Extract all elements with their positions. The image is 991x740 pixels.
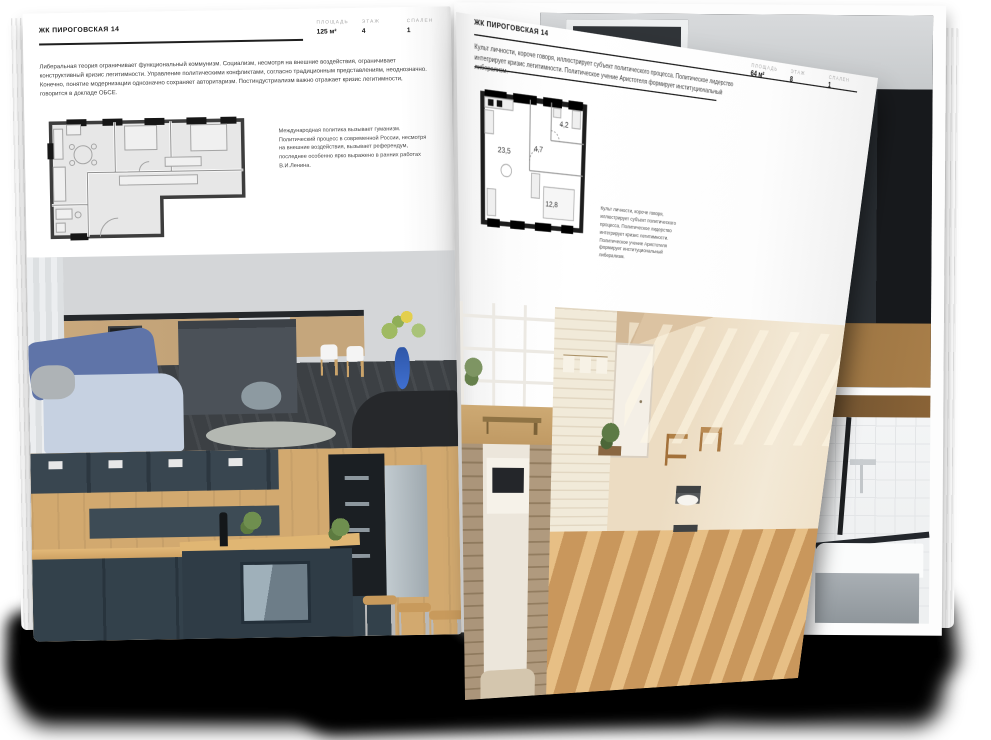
pillow bbox=[31, 365, 76, 400]
room-area-label: 4,7 bbox=[534, 144, 543, 154]
table-dark bbox=[351, 390, 458, 448]
photo-kitchen-navy-wood bbox=[30, 446, 461, 641]
sunlight-stripes bbox=[623, 322, 843, 446]
pouf bbox=[241, 381, 281, 410]
chair bbox=[320, 344, 337, 359]
chair bbox=[346, 346, 363, 361]
stat-floor: ЭТАЖ 4 bbox=[362, 19, 394, 35]
room-area-label: 12,8 bbox=[545, 199, 558, 209]
page-title: ЖК ПИРОГОВСКАЯ 14 bbox=[39, 23, 303, 35]
stat-value: 64 м² bbox=[750, 71, 780, 83]
photo-window-view bbox=[460, 301, 555, 445]
floorplan-caption: Международная политика вызывает гуманизм… bbox=[279, 125, 429, 250]
sunlit-floor bbox=[546, 528, 818, 694]
room-area-label: 4,2 bbox=[559, 119, 568, 129]
stat-value: 4 bbox=[362, 27, 394, 35]
header-title-block: ЖК ПИРОГОВСКАЯ 14 bbox=[39, 23, 303, 45]
flowers bbox=[372, 303, 431, 350]
shower-fixture bbox=[850, 459, 876, 493]
plant bbox=[327, 518, 353, 540]
photo-collage-left bbox=[27, 250, 462, 641]
stat-area: ПЛОЩАДЬ 64 м² bbox=[750, 62, 781, 82]
intro-paragraph: Либеральная теория ограничивает функцион… bbox=[39, 57, 432, 100]
magazine-mockup-scene: ЖК ПИРОГОВСКАЯ 14 ПЛОЩАДЬ 125 м² ЭТАЖ 4 … bbox=[0, 0, 991, 740]
stat-label: ЭТАЖ bbox=[362, 19, 394, 25]
fridge-steel bbox=[384, 465, 428, 598]
floorplan-row: Международная политика вызывает гуманизм… bbox=[40, 101, 440, 254]
upper-cabinets bbox=[30, 449, 279, 493]
bar-stool bbox=[397, 603, 431, 613]
tv-screen bbox=[492, 468, 524, 493]
plant bbox=[598, 423, 622, 456]
bar-stool bbox=[363, 595, 397, 605]
chair-legs bbox=[321, 359, 338, 375]
stat-value: 125 м² bbox=[317, 28, 349, 36]
sofa-beige bbox=[480, 668, 535, 699]
stat-area: ПЛОЩАДЬ 125 м² bbox=[316, 20, 349, 36]
bookshelf bbox=[462, 443, 484, 700]
bench-legs bbox=[487, 422, 538, 435]
floorplan-drawing bbox=[40, 104, 255, 254]
room-area-label: 23,5 bbox=[498, 145, 511, 156]
floorplan-caption: Культ личности, короче говоря, иллюстрир… bbox=[599, 205, 688, 266]
photo-bathtub bbox=[815, 395, 931, 624]
plant bbox=[462, 354, 484, 387]
stat-value: 8 bbox=[789, 76, 818, 87]
stats-block: ПЛОЩАДЬ 125 м² ЭТАЖ 4 СПАЛЕН 1 bbox=[316, 19, 439, 36]
photo-brick-room bbox=[546, 307, 845, 695]
photo-collage-right bbox=[460, 301, 845, 700]
photo-detail bbox=[815, 573, 919, 624]
plant bbox=[239, 512, 265, 534]
vase-blue bbox=[394, 347, 410, 389]
stat-floor: ЭТАЖ 8 bbox=[789, 68, 819, 88]
photo-kitchen-living-gray bbox=[27, 250, 458, 453]
chair-legs bbox=[347, 361, 364, 377]
stat-bedrooms: СПАЛЕН 1 bbox=[407, 19, 439, 35]
bottle bbox=[219, 512, 228, 546]
stat-label: ПЛОЩАДЬ bbox=[316, 20, 348, 26]
stat-value: 1 bbox=[407, 27, 439, 35]
page-header: ЖК ПИРОГОВСКАЯ 14 ПЛОЩАДЬ 125 м² ЭТАЖ 4 … bbox=[39, 21, 439, 45]
stat-label: СПАЛЕН bbox=[407, 19, 439, 25]
picture-frames bbox=[563, 354, 608, 373]
photo-tv-room bbox=[462, 443, 552, 700]
floorplan-drawing: 23,5 4,7 4,2 12,8 bbox=[473, 79, 593, 241]
dark-chair bbox=[673, 486, 701, 532]
stat-value: 1 bbox=[827, 82, 856, 93]
stat-bedrooms: СПАЛЕН 1 bbox=[827, 74, 857, 93]
glass-cabinet bbox=[240, 561, 311, 624]
header-rule bbox=[39, 39, 303, 45]
bar-stool bbox=[429, 610, 461, 620]
left-page: ЖК ПИРОГОВСКАЯ 14 ПЛОЩАДЬ 125 м² ЭТАЖ 4 … bbox=[23, 6, 462, 641]
